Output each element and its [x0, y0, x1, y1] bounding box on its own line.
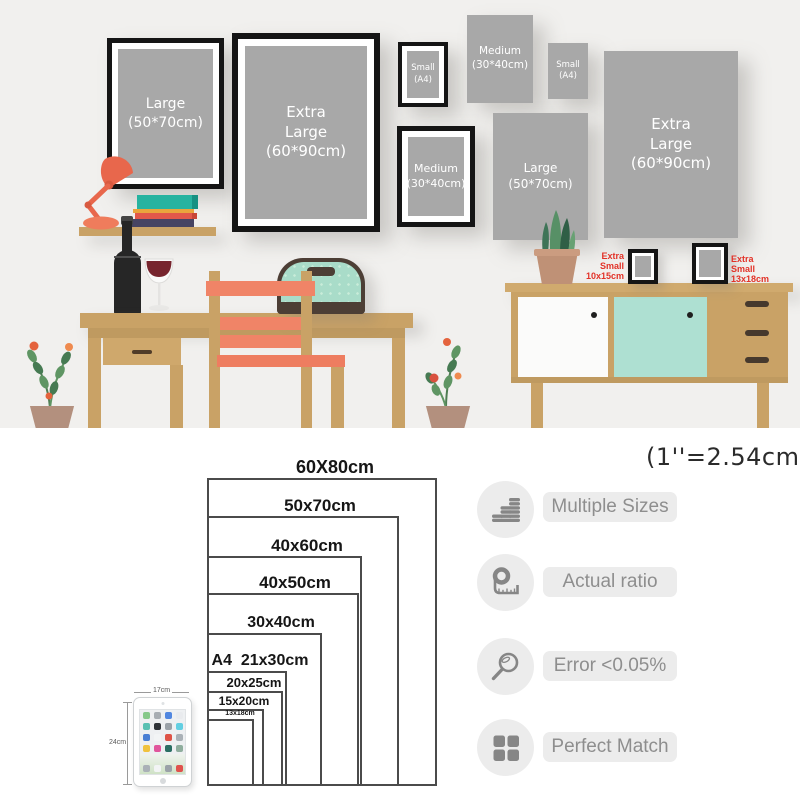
cactus-pot-rim — [534, 249, 580, 256]
size-label-60x80: 60X80cm — [296, 457, 374, 478]
sideboard-door-white — [518, 297, 608, 377]
floor-plant-right — [416, 334, 478, 408]
wall-frame-medium-left: Medium (30*40cm) — [397, 126, 475, 227]
feature-pill-perfect-match: Perfect Match — [543, 732, 677, 762]
ipad-app-grid — [140, 712, 185, 752]
inch-conversion-note: (1''=2.54cm) — [646, 443, 800, 471]
cactus-plant — [536, 206, 578, 254]
sideboard-door-mint — [614, 297, 707, 377]
app-icon — [154, 745, 161, 752]
book-teal — [137, 195, 198, 209]
wall-frame-small-a4: Small (A4) — [398, 42, 448, 107]
size-label-30x40: 30x40cm — [247, 614, 315, 632]
feature-badge — [477, 554, 534, 611]
chair-slat — [220, 335, 301, 348]
app-icon — [154, 712, 161, 719]
poster-label: Small — [556, 60, 580, 71]
frame-label: Small — [411, 63, 435, 74]
wine-bottle-band — [114, 256, 141, 258]
height-measure-line — [127, 702, 128, 785]
wine-bottle-neck — [122, 221, 132, 253]
poster-label: Large — [524, 161, 558, 177]
dock-app-icon — [176, 765, 183, 772]
ipad-screen — [139, 709, 186, 775]
ipad-dock — [140, 765, 185, 772]
sideboard-drawer-handle — [745, 330, 769, 336]
dock-app-icon — [143, 765, 150, 772]
chair-seat — [217, 355, 345, 367]
poster-label: Large — [650, 135, 692, 155]
size-label-40x50: 40x50cm — [259, 573, 331, 593]
frame-size-label: (A4) — [414, 75, 432, 86]
app-icon — [176, 723, 183, 730]
size-label-13x18: 13x18cm — [225, 710, 255, 717]
frame-label: Large — [285, 123, 327, 143]
desk-drawer — [103, 338, 181, 365]
feature-pill-actual-ratio: Actual ratio — [543, 567, 677, 597]
app-icon — [176, 712, 183, 719]
floor-plant-left — [20, 332, 82, 408]
wall-frame-xlarge-left: Extra Large (60*90cm) — [232, 33, 380, 232]
app-icon — [143, 745, 150, 752]
app-icon — [165, 734, 172, 741]
sideboard-leg — [531, 383, 543, 428]
sideboard-drawer-handle — [745, 357, 769, 363]
tabletop-frame-extra-small-right — [692, 243, 728, 284]
poster-size-label: (A4) — [559, 71, 577, 82]
ipad-camera-dot — [161, 702, 164, 705]
poster-size-label: (50*70cm) — [508, 177, 572, 193]
cactus-pot — [536, 256, 578, 284]
poster-label: Extra — [651, 115, 691, 135]
door-knob — [687, 312, 693, 318]
poster-size-label: (60*90cm) — [631, 154, 711, 174]
app-icon — [143, 712, 150, 719]
drawer-handle — [132, 350, 152, 354]
width-measure-line — [172, 692, 189, 693]
app-icon — [165, 723, 172, 730]
dock-app-icon — [165, 765, 172, 772]
desk-lamp-icon — [75, 152, 145, 232]
feature-badge — [477, 719, 534, 776]
size-label-20x25: 20x25cm — [227, 675, 282, 690]
poster-size-label: (30*40cm) — [472, 59, 528, 73]
chair-slat — [220, 317, 301, 330]
frame-label: Large — [146, 95, 185, 113]
coins-icon — [489, 493, 523, 527]
wall-poster-small-a4: Small (A4) — [548, 43, 588, 99]
wine-glass-icon — [143, 258, 175, 314]
frame-size-label: (60*90cm) — [266, 142, 346, 162]
feature-pill-error: Error <0.05% — [543, 651, 677, 681]
ipad-width-label: 17cm — [152, 687, 171, 694]
desk-leg — [88, 338, 101, 428]
plant-pot — [424, 406, 472, 428]
wine-bottle-body — [114, 250, 141, 314]
feature-badge — [477, 481, 534, 538]
size-label-a4-21x30: A4 21x30cm — [212, 652, 309, 670]
tabletop-frame-extra-small-left — [628, 249, 658, 284]
ipad-height-label: 24cm — [108, 739, 127, 746]
size-label-50x70: 50x70cm — [284, 496, 356, 516]
size-label-15x20: 15x20cm — [219, 694, 270, 708]
feature-badge — [477, 638, 534, 695]
sideboard-drawer-handle — [745, 301, 769, 307]
app-icon — [154, 734, 161, 741]
app-icon — [165, 745, 172, 752]
measure-cap — [123, 784, 132, 785]
product-infographic: Large (50*70cm) Extra Large (60*90cm) Sm… — [0, 0, 800, 800]
magnifier-icon — [489, 650, 523, 684]
plant-pot — [28, 406, 76, 428]
size-label-40x60: 40x60cm — [271, 536, 343, 556]
wall-poster-medium-top: Medium (30*40cm) — [467, 15, 533, 103]
measure-cap — [123, 702, 132, 703]
width-measure-line — [134, 692, 151, 693]
feature-pill-multiple-sizes: Multiple Sizes — [543, 492, 677, 522]
frame-label: Extra — [286, 103, 326, 123]
wall-poster-xlarge-right: Extra Large (60*90cm) — [604, 51, 738, 238]
room-scene: Large (50*70cm) Extra Large (60*90cm) Sm… — [0, 0, 800, 428]
frame-size-label: (50*70cm) — [128, 114, 203, 132]
tape-measure-icon — [489, 566, 523, 600]
frame-label: Medium — [414, 162, 458, 177]
app-icon — [176, 734, 183, 741]
poster-label: Medium — [479, 45, 521, 59]
sideboard-body — [511, 292, 788, 383]
ipad-home-button — [160, 778, 166, 784]
app-icon — [154, 723, 161, 730]
desk-leg — [392, 338, 405, 428]
app-icon — [165, 712, 172, 719]
extra-small-left-label: Extra Small 10x15cm — [578, 251, 624, 281]
app-icon — [176, 745, 183, 752]
chair-front-leg — [331, 367, 344, 428]
app-icon — [143, 723, 150, 730]
chair-top-rail — [206, 281, 315, 296]
sideboard-bottom-rail — [511, 377, 788, 383]
sideboard-top — [505, 283, 793, 292]
size-rect-13x18 — [207, 719, 254, 786]
app-icon — [143, 734, 150, 741]
extra-small-right-label: Extra Small 13x18cm — [731, 254, 777, 284]
sideboard-leg — [757, 383, 769, 428]
door-knob — [591, 312, 597, 318]
grid-icon — [489, 731, 523, 765]
dock-app-icon — [154, 765, 161, 772]
desk-leg — [170, 365, 183, 428]
frame-size-label: (30*40cm) — [407, 177, 466, 192]
storage-bag-base — [277, 302, 365, 314]
ipad-illustration — [133, 697, 192, 787]
